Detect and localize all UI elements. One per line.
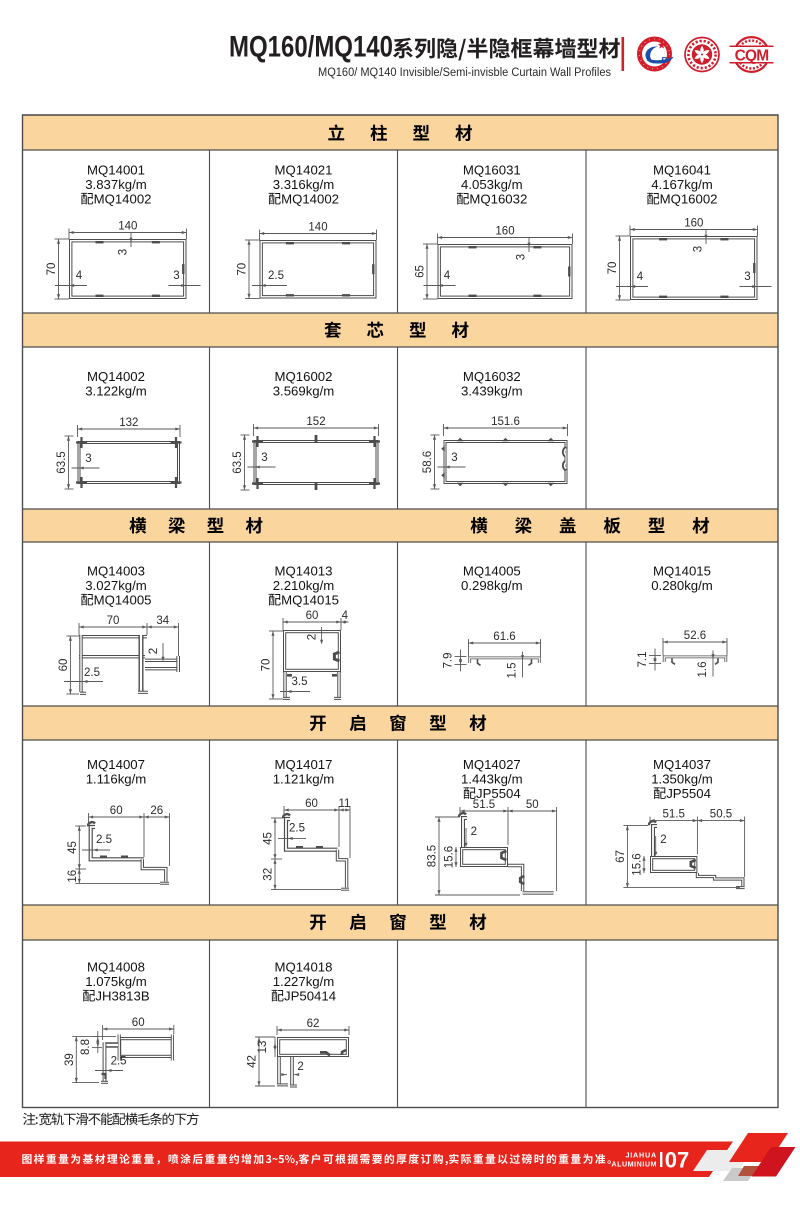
svg-text:51.5: 51.5: [663, 808, 685, 820]
svg-text:60: 60: [306, 610, 319, 622]
svg-text:MQ16031: MQ16031: [463, 163, 521, 178]
svg-text:MQ14007: MQ14007: [87, 757, 145, 772]
svg-text:MQ14003: MQ14003: [87, 564, 145, 579]
svg-text:4.053kg/m: 4.053kg/m: [461, 177, 523, 192]
svg-text:4: 4: [76, 270, 83, 282]
svg-text:50: 50: [526, 799, 539, 811]
svg-text:4: 4: [342, 610, 349, 622]
svg-text:MQ14001: MQ14001: [87, 163, 145, 178]
svg-text:16: 16: [67, 870, 79, 883]
svg-text:26: 26: [150, 805, 163, 817]
svg-text:3: 3: [744, 271, 750, 283]
svg-text:3.837kg/m: 3.837kg/m: [85, 177, 147, 192]
svg-text:JIAHUA: JIAHUA: [625, 1151, 657, 1160]
svg-text:60: 60: [58, 659, 70, 672]
svg-text:70: 70: [607, 262, 619, 275]
svg-text:32: 32: [263, 868, 275, 881]
svg-text:MQ16002: MQ16002: [660, 192, 718, 207]
svg-text:1.443kg/m: 1.443kg/m: [461, 772, 523, 787]
svg-text:63.5: 63.5: [56, 451, 68, 473]
svg-text:50.5: 50.5: [710, 808, 732, 820]
svg-text:15.6: 15.6: [444, 846, 456, 868]
svg-text:3.316kg/m: 3.316kg/m: [273, 177, 335, 192]
svg-text:4: 4: [637, 271, 644, 283]
svg-text:160: 160: [495, 225, 514, 237]
svg-text:MQ14021: MQ14021: [275, 163, 333, 178]
svg-text:ALUMINIUM: ALUMINIUM: [611, 1160, 657, 1169]
svg-text:13: 13: [257, 1041, 269, 1054]
svg-text:JH3813B: JH3813B: [95, 989, 149, 1004]
svg-text:83.5: 83.5: [427, 845, 439, 867]
svg-text:70: 70: [261, 659, 273, 672]
svg-text:1.075kg/m: 1.075kg/m: [85, 974, 147, 989]
svg-text:MQ16032: MQ16032: [463, 369, 521, 384]
svg-text:3: 3: [451, 452, 457, 464]
svg-text:3.439kg/m: 3.439kg/m: [461, 384, 523, 399]
svg-text:45: 45: [67, 841, 79, 854]
svg-text:0.280kg/m: 0.280kg/m: [651, 578, 713, 593]
svg-text:1.116kg/m: 1.116kg/m: [86, 772, 147, 787]
svg-text:3: 3: [118, 249, 130, 255]
svg-text:3.027kg/m: 3.027kg/m: [85, 578, 147, 593]
svg-text:63.5: 63.5: [232, 451, 244, 473]
svg-text:MQ14027: MQ14027: [463, 757, 521, 772]
svg-text:1.6: 1.6: [697, 662, 709, 678]
svg-text:152: 152: [306, 416, 325, 428]
svg-text:45: 45: [263, 832, 275, 845]
svg-text:7.1: 7.1: [637, 652, 649, 668]
svg-text:JP50414: JP50414: [284, 989, 336, 1004]
svg-text:4.167kg/m: 4.167kg/m: [651, 177, 713, 192]
svg-text:MQ16041: MQ16041: [653, 163, 711, 178]
svg-text:2.5: 2.5: [268, 270, 284, 282]
svg-text:3: 3: [173, 270, 179, 282]
svg-text:51.5: 51.5: [473, 799, 495, 811]
svg-text:MQ14015: MQ14015: [281, 593, 339, 608]
svg-text:MQ14002: MQ14002: [94, 192, 152, 207]
svg-text:2.210kg/m: 2.210kg/m: [273, 578, 335, 593]
svg-text:3: 3: [85, 453, 91, 465]
svg-text:3: 3: [516, 254, 528, 260]
svg-text:2: 2: [307, 634, 319, 640]
svg-text:07: 07: [665, 1147, 689, 1172]
svg-text:MQ160/MQ140: MQ160/MQ140: [229, 31, 393, 64]
svg-text:MQ14005: MQ14005: [463, 564, 521, 579]
svg-text:60: 60: [305, 798, 318, 810]
svg-text:1.350kg/m: 1.350kg/m: [651, 772, 713, 787]
svg-text:2: 2: [660, 834, 666, 846]
svg-text:42: 42: [247, 1055, 259, 1068]
svg-text:140: 140: [308, 221, 327, 233]
svg-text:11: 11: [339, 798, 351, 810]
svg-text:MQ14008: MQ14008: [87, 960, 145, 975]
svg-text:67: 67: [615, 850, 627, 863]
svg-text:58.6: 58.6: [422, 451, 434, 473]
svg-text:140: 140: [118, 220, 137, 232]
svg-text:3.569kg/m: 3.569kg/m: [273, 384, 335, 399]
svg-text:2.5: 2.5: [96, 834, 112, 846]
svg-text:1.5: 1.5: [507, 663, 519, 679]
svg-text:2.5: 2.5: [289, 823, 305, 835]
svg-text:MQ14015: MQ14015: [653, 564, 711, 579]
svg-text:3: 3: [693, 246, 705, 252]
svg-text:7.9: 7.9: [443, 653, 455, 669]
svg-text:2: 2: [297, 1061, 303, 1073]
svg-text:3.122kg/m: 3.122kg/m: [85, 384, 147, 399]
svg-text:JP5504: JP5504: [666, 786, 711, 801]
svg-text:0.298kg/m: 0.298kg/m: [461, 578, 523, 593]
svg-text:MQ14002: MQ14002: [87, 369, 145, 384]
svg-text:60: 60: [132, 1017, 145, 1029]
svg-text:4: 4: [444, 270, 451, 282]
svg-text:132: 132: [119, 417, 138, 429]
svg-text:34: 34: [156, 615, 169, 627]
svg-text:151.6: 151.6: [491, 416, 520, 428]
svg-text:MQ14005: MQ14005: [94, 593, 152, 608]
svg-text:B: B: [661, 55, 667, 65]
svg-text:70: 70: [46, 263, 58, 276]
svg-text:70: 70: [107, 615, 120, 627]
svg-text:160: 160: [684, 217, 703, 229]
svg-text:MQ16032: MQ16032: [469, 192, 527, 207]
svg-text:2: 2: [148, 648, 160, 654]
svg-text:60: 60: [110, 805, 123, 817]
svg-text:52.6: 52.6: [684, 630, 706, 642]
svg-text:15.6: 15.6: [632, 853, 644, 875]
svg-text:2.5: 2.5: [111, 1056, 127, 1068]
svg-text:62: 62: [307, 1018, 320, 1030]
svg-text:MQ14002: MQ14002: [281, 192, 339, 207]
svg-text:70: 70: [236, 263, 248, 276]
svg-text:8.8: 8.8: [80, 1039, 92, 1055]
svg-text:2.5: 2.5: [84, 667, 100, 679]
svg-text:3.5: 3.5: [292, 676, 308, 688]
svg-text:61.6: 61.6: [493, 631, 515, 643]
svg-text:CQM: CQM: [735, 47, 769, 64]
svg-text:65: 65: [415, 265, 427, 278]
svg-text:3: 3: [261, 452, 267, 464]
svg-text:2: 2: [471, 826, 477, 838]
svg-text:1.121kg/m: 1.121kg/m: [273, 772, 335, 787]
svg-text:MQ14037: MQ14037: [653, 757, 711, 772]
svg-text:1.227kg/m: 1.227kg/m: [273, 974, 335, 989]
svg-text:MQ14017: MQ14017: [275, 757, 333, 772]
svg-text:MQ160/ MQ140 Invisible/Semi-i: MQ160/ MQ140 Invisible/Semi-invisble Cur…: [318, 67, 611, 79]
svg-text:39: 39: [64, 1053, 76, 1066]
svg-text:MQ14013: MQ14013: [275, 564, 333, 579]
svg-text:MQ14018: MQ14018: [275, 960, 333, 975]
svg-text:MQ16002: MQ16002: [275, 369, 333, 384]
